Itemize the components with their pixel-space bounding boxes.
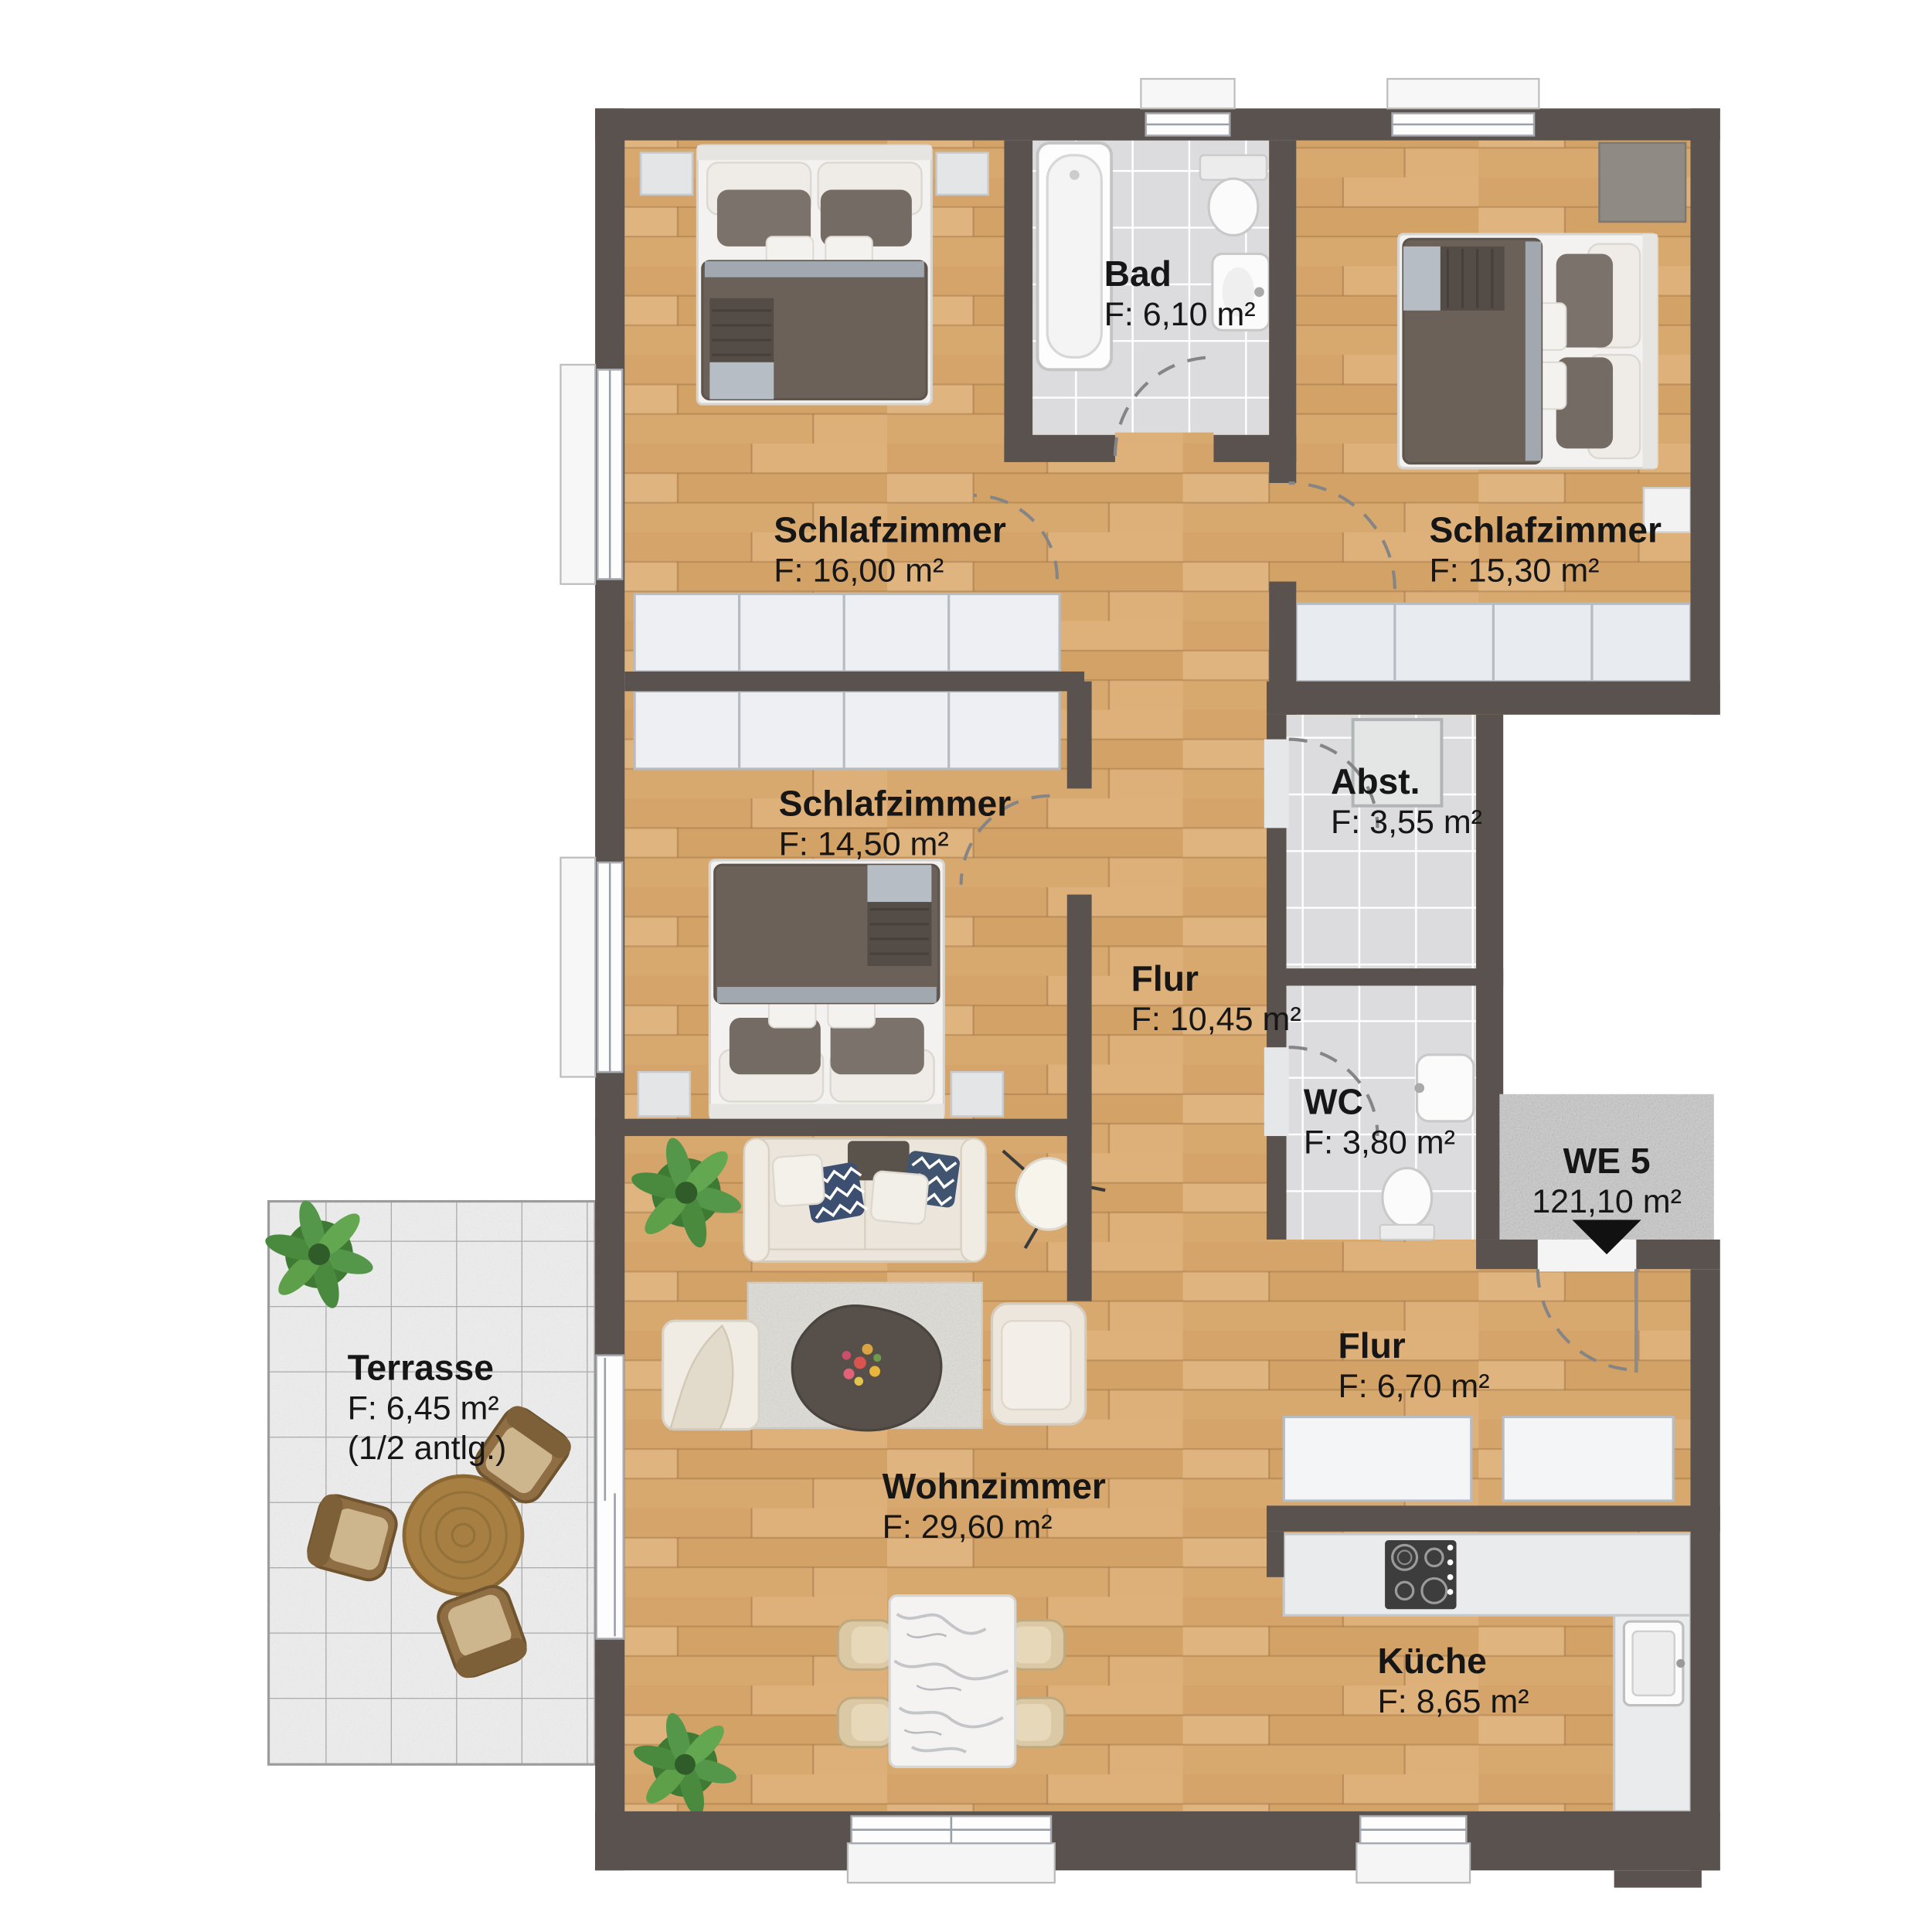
wc-basin-icon (1414, 1055, 1474, 1121)
svg-text:Schlafzimmer: Schlafzimmer (774, 510, 1006, 550)
wall-abst-wc-divider (1267, 968, 1503, 985)
wall-right-upper (1691, 108, 1720, 714)
svg-text:F: 10,45 m²: F: 10,45 m² (1131, 1001, 1301, 1038)
svg-text:F: 16,00 m²: F: 16,00 m² (774, 553, 944, 590)
dining-table-icon (889, 1596, 1015, 1767)
window-living (852, 1816, 1051, 1843)
window-bedroom1 (597, 369, 622, 579)
floor-plan: WE 5 121,10 m² Bad F: 6,10 m² Schlafzimm… (0, 0, 1932, 1932)
window-sill (1141, 79, 1234, 108)
wall-bath-left (1004, 141, 1032, 462)
wall-bedroom3-south (595, 1119, 1092, 1136)
wall-hall-kitchen (1267, 1505, 1720, 1531)
armchair-icon (992, 1304, 1085, 1424)
wall-right-lower (1691, 1269, 1720, 1870)
stove-icon (1385, 1540, 1456, 1609)
dining-chair-icon (838, 1621, 894, 1670)
svg-text:F: 3,80 m²: F: 3,80 m² (1304, 1124, 1455, 1161)
terrace-table-icon (404, 1476, 522, 1594)
window-bedroom3 (597, 862, 622, 1072)
lounge-chair-icon (663, 1321, 759, 1429)
window-sill (560, 858, 595, 1077)
svg-text:F: 6,10 m²: F: 6,10 m² (1104, 296, 1256, 333)
wall-stub (1614, 1870, 1702, 1887)
wardrobe-bedroom3 (634, 691, 1060, 768)
svg-text:Flur: Flur (1338, 1325, 1406, 1366)
svg-text:F: 14,50 m²: F: 14,50 m² (779, 826, 949, 863)
wall-bedroom-divider (624, 672, 1084, 692)
svg-text:F: 8,65 m²: F: 8,65 m² (1378, 1683, 1529, 1720)
bed-icon (709, 860, 944, 1119)
svg-text:WC: WC (1304, 1081, 1363, 1121)
window-bedroom2 (1393, 114, 1534, 136)
svg-text:Flur: Flur (1131, 958, 1199, 998)
bed-icon (1399, 234, 1658, 468)
unit-label: WE 5 (1563, 1141, 1651, 1181)
svg-text:Abst.: Abst. (1331, 761, 1420, 801)
svg-text:Schlafzimmer: Schlafzimmer (1429, 510, 1662, 550)
bed-icon (697, 145, 931, 404)
svg-text:F: 15,30 m²: F: 15,30 m² (1429, 553, 1599, 590)
wc-toilet-icon (1380, 1168, 1434, 1239)
svg-text:Bad: Bad (1104, 253, 1172, 294)
sofa-icon (744, 1138, 986, 1261)
unit-area: 121,10 m² (1532, 1183, 1682, 1220)
svg-text:(1/2 antlg.): (1/2 antlg.) (348, 1430, 507, 1467)
nightstand-icon (641, 153, 692, 195)
wall-notch-top (1267, 682, 1720, 715)
window-sill (560, 365, 595, 584)
window-sill (848, 1843, 1055, 1883)
wall-bedroom2-left (1269, 141, 1296, 715)
hall-closet-right (1503, 1417, 1673, 1501)
svg-text:Terrasse: Terrasse (348, 1348, 494, 1388)
nightstand-icon (638, 1072, 690, 1116)
svg-text:Schlafzimmer: Schlafzimmer (779, 783, 1012, 823)
wall-kitchen-stub (1267, 1532, 1284, 1577)
dining-chair-icon (838, 1698, 894, 1747)
svg-text:F: 6,70 m²: F: 6,70 m² (1338, 1368, 1490, 1405)
kitchen-counter-top (1284, 1534, 1690, 1615)
wardrobe-bedroom1 (634, 594, 1060, 671)
window-sill (1387, 79, 1539, 108)
terrace-door (597, 1355, 624, 1639)
svg-text:F: 29,60 m²: F: 29,60 m² (883, 1509, 1053, 1546)
svg-text:Wohnzimmer: Wohnzimmer (883, 1466, 1106, 1506)
svg-text:F: 6,45 m²: F: 6,45 m² (348, 1390, 499, 1427)
svg-text:Küche: Küche (1378, 1641, 1487, 1681)
nightstand-icon (951, 1072, 1003, 1116)
landing: WE 5 121,10 m² (1499, 1094, 1713, 1254)
window-bath (1146, 114, 1230, 136)
wardrobe-icon (1600, 143, 1686, 222)
wall-bottom (595, 1811, 1720, 1871)
wall-corridor-left (1067, 682, 1092, 1301)
bathtub-icon (1037, 143, 1111, 369)
svg-text:F: 3,55 m²: F: 3,55 m² (1331, 804, 1482, 841)
coffee-table-icon (792, 1306, 941, 1430)
room-label-terrasse: Terrasse F: 6,45 m² (1/2 antlg.) (348, 1348, 507, 1467)
window-kitchen (1360, 1816, 1466, 1843)
hall-closet-left (1284, 1417, 1471, 1501)
window-sill (1356, 1843, 1470, 1883)
kitchen-sink-icon (1624, 1621, 1685, 1705)
nightstand-icon (937, 153, 988, 195)
